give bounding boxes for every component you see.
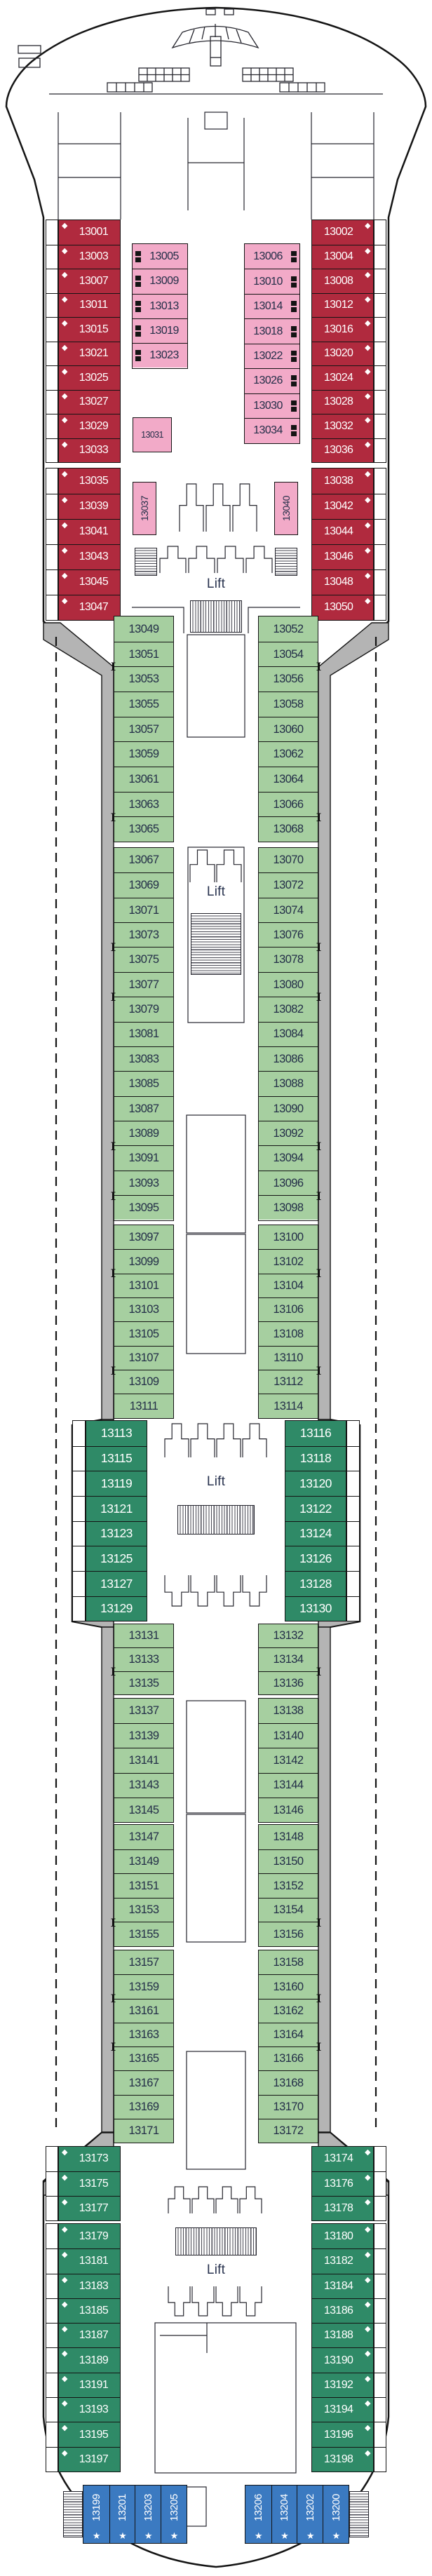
cabin-number: 13168	[259, 2077, 318, 2089]
cabin-number: 13014	[245, 301, 291, 312]
diamond-icon: ◆	[62, 2226, 67, 2234]
cabin-number: 13102	[259, 1256, 318, 1268]
cabin-13116[interactable]: 13116	[285, 1421, 346, 1446]
cabin-number: 13148	[259, 1831, 318, 1843]
cabin-13140[interactable]: 13140	[259, 1723, 318, 1748]
cabin-13199[interactable]: 13199★	[83, 2486, 109, 2543]
cabin-13002[interactable]: 13002◆	[312, 220, 373, 245]
diamond-icon: ◆	[62, 296, 67, 304]
cabin-13005[interactable]: 13005	[133, 244, 187, 269]
cabin-number: 13042	[312, 501, 365, 512]
star-icon: ★	[93, 2531, 100, 2540]
cabin-13124[interactable]: 13124	[285, 1521, 346, 1546]
cabin-number: 13146	[259, 1805, 318, 1816]
cabin-13144[interactable]: 13144	[259, 1773, 318, 1798]
cabin-13156[interactable]: 13156	[259, 1922, 318, 1946]
cabin-number: 13115	[86, 1452, 147, 1465]
fwd-port-interior: 1300513009130131301913023	[132, 243, 188, 369]
cabin-number: 13109	[114, 1376, 173, 1388]
balcony-cell	[374, 2298, 386, 2323]
cabin-number: 13173	[67, 2153, 120, 2164]
cabin-13070[interactable]: 13070	[259, 848, 318, 872]
cabin-13132[interactable]: 13132	[259, 1624, 318, 1647]
cabin-13115[interactable]: 13115	[86, 1446, 147, 1471]
cabin-13100[interactable]: 13100	[259, 1225, 318, 1249]
cabin-13042[interactable]: 13042◆	[312, 494, 373, 519]
cabin-13103[interactable]: 13103	[114, 1297, 173, 1321]
cabin-13168[interactable]: 13168	[259, 2070, 318, 2094]
cabin-13205[interactable]: 13205★	[161, 2486, 187, 2543]
cabin-13155[interactable]: 13155	[114, 1922, 173, 1946]
cabin-number: 13069	[114, 879, 173, 891]
cabin-13198[interactable]: 13198◆	[312, 2447, 373, 2472]
cabin-13046[interactable]: 13046◆	[312, 544, 373, 569]
cabin-number: 13013	[141, 301, 187, 312]
balcony-cell	[46, 2447, 58, 2472]
cabin-13167[interactable]: 13167	[114, 2070, 173, 2094]
cabin-13154[interactable]: 13154	[259, 1898, 318, 1922]
cabin-13089[interactable]: 13089	[114, 1121, 173, 1145]
cabin-13067[interactable]: 13067	[114, 848, 173, 872]
cabin-number: 13160	[259, 1981, 318, 1993]
cabin-13016[interactable]: 13016◆	[312, 317, 373, 342]
cabin-13190[interactable]: 13190◆	[312, 2347, 373, 2372]
cabin-13118[interactable]: 13118	[285, 1446, 346, 1471]
balcony-cell	[374, 2347, 386, 2372]
balcony-cells	[374, 468, 386, 621]
cabin-13201[interactable]: 13201★	[109, 2486, 135, 2543]
cabin-13153[interactable]: 13153	[114, 1898, 173, 1922]
cabin-13069[interactable]: 13069	[114, 872, 173, 897]
cabin-13088[interactable]: 13088	[259, 1071, 318, 1095]
cabin-13055[interactable]: 13055	[114, 692, 173, 717]
balcony-cell	[46, 519, 58, 544]
cabin-number: 13059	[114, 748, 173, 760]
cabin-13196[interactable]: 13196◆	[312, 2422, 373, 2446]
cabin-13134[interactable]: 13134	[259, 1647, 318, 1671]
connecting-rooms-icon: I	[314, 1917, 323, 1929]
diamond-icon: ◆	[365, 497, 370, 504]
cabin-number: 13071	[114, 905, 173, 917]
cabin-13087[interactable]: 13087	[114, 1096, 173, 1121]
cabin-13166[interactable]: 13166	[259, 2046, 318, 2070]
cabin-13095[interactable]: 13095	[114, 1195, 173, 1220]
cabin-13041[interactable]: ◆13041	[59, 519, 120, 544]
cabin-number: 13181	[67, 2255, 120, 2267]
cabin-13015[interactable]: ◆13015	[59, 317, 120, 342]
cabin-13082[interactable]: 13082	[259, 997, 318, 1021]
cabin-13059[interactable]: 13059	[114, 741, 173, 767]
cabin-13027[interactable]: ◆13027	[59, 390, 120, 414]
cabin-13026[interactable]: 13026	[245, 368, 299, 393]
cabin-13007[interactable]: ◆13007	[59, 269, 120, 293]
diamond-icon: ◆	[365, 2400, 370, 2408]
balcony-cell	[73, 1446, 85, 1471]
cabin-13147[interactable]: 13147	[114, 1825, 173, 1849]
cabin-13033[interactable]: ◆13033	[59, 438, 120, 463]
connecting-rooms-icon: I	[109, 1992, 118, 2005]
cabin-13178[interactable]: 13178◆	[312, 2196, 373, 2220]
cabin-13037[interactable]: 13037	[133, 483, 156, 534]
cabin-number: 13194	[312, 2404, 365, 2415]
cabin-number: 13125	[86, 1553, 147, 1565]
cabin-13012[interactable]: 13012◆	[312, 293, 373, 318]
cabin-13028[interactable]: 13028◆	[312, 390, 373, 414]
cabin-13003[interactable]: ◆13003	[59, 245, 120, 269]
balcony-cell	[46, 317, 58, 342]
cabin-13083[interactable]: 13083	[114, 1046, 173, 1071]
cabin-13142[interactable]: 13142	[259, 1748, 318, 1772]
cabin-13049[interactable]: 13049	[114, 616, 173, 642]
cabin-13094[interactable]: 13094	[259, 1145, 318, 1170]
diamond-icon: ◆	[365, 271, 370, 279]
cabin-13071[interactable]: 13071	[114, 898, 173, 922]
cabin-13108[interactable]: 13108	[259, 1321, 318, 1345]
cabin-number: 13184	[312, 2281, 365, 2292]
cabin-13112[interactable]: 13112	[259, 1370, 318, 1394]
cabin-number: 13116	[285, 1427, 346, 1440]
cabin-13125[interactable]: 13125	[86, 1546, 147, 1571]
cabin-13135[interactable]: 13135	[114, 1671, 173, 1694]
cabin-13128[interactable]: 13128	[285, 1571, 346, 1596]
cabin-13073[interactable]: 13073	[114, 922, 173, 947]
cabin-13074[interactable]: 13074	[259, 898, 318, 922]
lift-label-aft: Lift	[207, 2263, 225, 2278]
cabin-13194[interactable]: 13194◆	[312, 2397, 373, 2422]
cabin-13064[interactable]: 13064	[259, 767, 318, 792]
balcony-cell	[374, 2447, 386, 2472]
cabin-13139[interactable]: 13139	[114, 1723, 173, 1748]
cabin-number: 13134	[259, 1654, 318, 1666]
cabin-13145[interactable]: 13145	[114, 1798, 173, 1822]
cabin-13193[interactable]: ◆13193	[59, 2397, 120, 2422]
cabin-number: 13031	[133, 431, 171, 440]
cabin-13172[interactable]: 13172	[259, 2119, 318, 2143]
cabin-13162[interactable]: 13162	[259, 1999, 318, 2023]
cabin-13152[interactable]: 13152	[259, 1873, 318, 1898]
cabin-13030[interactable]: 13030	[245, 393, 299, 418]
cabin-13106[interactable]: 13106	[259, 1297, 318, 1321]
cabin-13165[interactable]: 13165	[114, 2046, 173, 2070]
cabin-13072[interactable]: 13072	[259, 872, 318, 897]
cabin-number: 13188	[312, 2330, 365, 2341]
cabin-13192[interactable]: 13192◆	[312, 2373, 373, 2397]
cabin-number: 13086	[259, 1053, 318, 1065]
cabin-13065[interactable]: 13065	[114, 816, 173, 842]
cabin-13176[interactable]: 13176◆	[312, 2171, 373, 2196]
cabin-13141[interactable]: 13141	[114, 1748, 173, 1772]
cabin-13076[interactable]: 13076	[259, 922, 318, 947]
cabin-13056[interactable]: 13056	[259, 666, 318, 692]
balcony-cell	[347, 1421, 359, 1446]
diamond-icon: ◆	[62, 2450, 67, 2457]
cabin-number: 13140	[259, 1730, 318, 1742]
cabin-13009[interactable]: 13009	[133, 269, 187, 293]
connecting-rooms-icon: I	[314, 1666, 323, 1678]
cabin-13098[interactable]: 13098	[259, 1195, 318, 1220]
cabin-13157[interactable]: 13157	[114, 1950, 173, 1974]
diamond-icon: ◆	[365, 2226, 370, 2234]
cabin-13183[interactable]: ◆13183	[59, 2274, 120, 2298]
cabin-13174[interactable]: 13174◆	[312, 2147, 373, 2171]
cabin-13092[interactable]: 13092	[259, 1121, 318, 1145]
cabin-13113[interactable]: 13113	[86, 1421, 147, 1446]
cabin-13010[interactable]: 13010	[245, 269, 299, 293]
cabin-13057[interactable]: 13057	[114, 717, 173, 742]
cabin-number: 13124	[285, 1528, 346, 1540]
cabin-13050[interactable]: 13050◆	[312, 595, 373, 620]
cabin-13011[interactable]: ◆13011	[59, 293, 120, 318]
cabin-13035[interactable]: ◆13035	[59, 468, 120, 494]
cabin-13019[interactable]: 13019	[133, 318, 187, 343]
cabin-13060[interactable]: 13060	[259, 717, 318, 742]
cabin-13123[interactable]: 13123	[86, 1521, 147, 1546]
cabin-13029[interactable]: ◆13029	[59, 414, 120, 438]
cabin-13189[interactable]: ◆13189	[59, 2347, 120, 2372]
cabin-number: 13171	[114, 2125, 173, 2137]
cabin-number: 13076	[259, 929, 318, 941]
cabin-13129[interactable]: 13129	[86, 1596, 147, 1621]
diamond-icon: ◆	[62, 547, 67, 555]
cabin-13081[interactable]: 13081	[114, 1022, 173, 1046]
balcony-cell	[374, 595, 386, 620]
cabin-number: 13032	[312, 421, 365, 432]
cabin-13160[interactable]: 13160	[259, 1974, 318, 1998]
cabin-13099[interactable]: 13099	[114, 1249, 173, 1273]
cabin-number: 13196	[312, 2429, 365, 2441]
cabin-13020[interactable]: 13020◆	[312, 342, 373, 366]
cabin-number: 13067	[114, 854, 173, 866]
cabin-13051[interactable]: 13051	[114, 642, 173, 667]
balcony-cell	[374, 544, 386, 569]
cabin-13206[interactable]: 13206★	[245, 2486, 271, 2543]
cabin-13200[interactable]: 13200★	[323, 2486, 349, 2543]
cabin-13202[interactable]: 13202★	[297, 2486, 323, 2543]
cabin-13048[interactable]: 13048◆	[312, 569, 373, 595]
cabin-13093[interactable]: 13093	[114, 1171, 173, 1195]
cabin-13126[interactable]: 13126	[285, 1546, 346, 1571]
cabin-13021[interactable]: ◆13021	[59, 342, 120, 366]
cabin-layer: ◆13001◆13003◆13007◆13011◆13015◆13021◆130…	[0, 0, 432, 2576]
balcony-cell	[374, 468, 386, 494]
cabin-13024[interactable]: 13024◆	[312, 365, 373, 390]
cabin-number: 13114	[259, 1401, 318, 1412]
cabin-number: 13005	[141, 251, 187, 262]
cabin-13034[interactable]: 13034	[245, 418, 299, 443]
cabin-13179[interactable]: ◆13179	[59, 2224, 120, 2248]
cabin-13111[interactable]: 13111	[114, 1394, 173, 1417]
connecting-rooms-icon: I	[109, 1267, 118, 1280]
cabin-number: 13122	[285, 1503, 346, 1516]
cabin-13182[interactable]: 13182◆	[312, 2248, 373, 2273]
cabin-13122[interactable]: 13122	[285, 1496, 346, 1521]
cabin-13023[interactable]: 13023	[133, 343, 187, 367]
cabin-13204[interactable]: 13204★	[271, 2486, 297, 2543]
cabin-13109[interactable]: 13109	[114, 1370, 173, 1394]
cabin-number: 13045	[67, 576, 120, 588]
cabin-13151[interactable]: 13151	[114, 1873, 173, 1898]
cabin-13077[interactable]: 13077	[114, 972, 173, 997]
cabin-number: 13073	[114, 929, 173, 941]
balcony-cells	[46, 220, 58, 463]
cabin-number: 13052	[259, 623, 318, 635]
cabin-13203[interactable]: 13203★	[135, 2486, 161, 2543]
cabin-13149[interactable]: 13149	[114, 1849, 173, 1874]
cabin-13080[interactable]: 13080	[259, 972, 318, 997]
cabin-number: 13143	[114, 1779, 173, 1791]
cabin-13091[interactable]: 13091	[114, 1145, 173, 1170]
cabin-13107[interactable]: 13107	[114, 1346, 173, 1370]
cabin-13130[interactable]: 13130	[285, 1596, 346, 1621]
cabin-13186[interactable]: 13186◆	[312, 2298, 373, 2323]
cabin-number: 13019	[141, 325, 187, 337]
cabin-13054[interactable]: 13054	[259, 642, 318, 667]
balcony-cell	[46, 544, 58, 569]
cabin-13068[interactable]: 13068	[259, 816, 318, 842]
cabin-13191[interactable]: ◆13191	[59, 2373, 120, 2397]
cabin-number: 13093	[114, 1178, 173, 1189]
cabin-13053[interactable]: 13053	[114, 666, 173, 692]
cabin-13058[interactable]: 13058	[259, 692, 318, 717]
cabin-13006[interactable]: 13006	[245, 244, 299, 269]
cabin-13148[interactable]: 13148	[259, 1825, 318, 1849]
balcony-cell	[374, 365, 386, 390]
cabin-13110[interactable]: 13110	[259, 1346, 318, 1370]
cabin-13018[interactable]: 13018	[245, 318, 299, 343]
cabin-13180[interactable]: 13180◆	[312, 2224, 373, 2248]
cabin-13170[interactable]: 13170	[259, 2095, 318, 2119]
cabin-number: 13061	[114, 774, 173, 785]
cabin-number: 13050	[312, 602, 365, 613]
cabin-13090[interactable]: 13090	[259, 1096, 318, 1121]
connecting-rooms-icon: I	[314, 2041, 323, 2054]
cabin-13045[interactable]: ◆13045	[59, 569, 120, 595]
mid-stbd-balcony-7: 1315813160131621316413166131681317013172…	[258, 1950, 318, 2143]
cabin-13159[interactable]: 13159	[114, 1974, 173, 1998]
cabin-13047[interactable]: ◆13047	[59, 595, 120, 620]
cabin-13013[interactable]: 13013	[133, 294, 187, 318]
cabin-13066[interactable]: 13066	[259, 792, 318, 817]
cabin-13025[interactable]: ◆13025	[59, 365, 120, 390]
cabin-13078[interactable]: 13078	[259, 947, 318, 971]
connecting-rooms-icon: I	[314, 941, 323, 954]
cabin-13004[interactable]: 13004◆	[312, 245, 373, 269]
cabin-13032[interactable]: 13032◆	[312, 414, 373, 438]
cabin-13181[interactable]: ◆13181	[59, 2248, 120, 2273]
cabin-13043[interactable]: ◆13043	[59, 544, 120, 569]
cabin-13008[interactable]: 13008◆	[312, 269, 373, 293]
cabin-13101[interactable]: 13101	[114, 1274, 173, 1297]
cabin-13136[interactable]: 13136	[259, 1671, 318, 1694]
cabin-13127[interactable]: 13127	[86, 1571, 147, 1596]
cabin-number: 13176	[312, 2178, 365, 2190]
cabin-number: 13039	[67, 501, 120, 512]
cabin-number: 13010	[245, 276, 291, 288]
cabin-13096[interactable]: 13096	[259, 1171, 318, 1195]
cabin-13038[interactable]: 13038◆	[312, 468, 373, 494]
cabin-13052[interactable]: 13052	[259, 616, 318, 642]
diamond-icon: ◆	[365, 296, 370, 304]
balcony-cell	[347, 1446, 359, 1471]
cabin-13163[interactable]: 13163	[114, 2023, 173, 2046]
cabin-13195[interactable]: ◆13195	[59, 2422, 120, 2446]
cabin-13171[interactable]: 13171	[114, 2119, 173, 2143]
cabin-13039[interactable]: ◆13039	[59, 494, 120, 519]
cabin-13022[interactable]: 13022	[245, 344, 299, 368]
cabin-13143[interactable]: 13143	[114, 1773, 173, 1798]
cabin-13173[interactable]: ◆13173	[59, 2147, 120, 2171]
cabin-13075[interactable]: 13075	[114, 947, 173, 971]
cabin-13169[interactable]: 13169	[114, 2095, 173, 2119]
cabin-13175[interactable]: ◆13175	[59, 2171, 120, 2196]
cabin-13031[interactable]: 13031	[133, 418, 171, 452]
cabin-13119[interactable]: 13119	[86, 1471, 147, 1496]
balcony-cells	[46, 2146, 58, 2221]
cabin-13040[interactable]: 13040	[275, 483, 297, 534]
cabin-13079[interactable]: 13079	[114, 997, 173, 1021]
cabin-13158[interactable]: 13158	[259, 1950, 318, 1974]
cabin-13197[interactable]: ◆13197	[59, 2447, 120, 2472]
cabin-13146[interactable]: 13146	[259, 1798, 318, 1822]
cabin-number: 13129	[86, 1603, 147, 1615]
cabin-number: 13100	[259, 1232, 318, 1243]
cabin-13086[interactable]: 13086	[259, 1046, 318, 1071]
cabin-13114[interactable]: 13114	[259, 1394, 318, 1417]
cabin-13014[interactable]: 13014	[245, 294, 299, 318]
cabin-13187[interactable]: ◆13187	[59, 2323, 120, 2347]
cabin-number: 13041	[67, 526, 120, 537]
cabin-13062[interactable]: 13062	[259, 741, 318, 767]
cabin-13102[interactable]: 13102	[259, 1249, 318, 1273]
balcony-cell	[46, 269, 58, 293]
cabin-13085[interactable]: 13085	[114, 1071, 173, 1095]
cabin-13044[interactable]: 13044◆	[312, 519, 373, 544]
cabin-13097[interactable]: 13097	[114, 1225, 173, 1249]
diamond-icon: ◆	[62, 2400, 67, 2408]
cabin-13185[interactable]: ◆13185	[59, 2298, 120, 2323]
cabin-13121[interactable]: 13121	[86, 1496, 147, 1521]
cabin-13120[interactable]: 13120	[285, 1471, 346, 1496]
cabin-13161[interactable]: 13161	[114, 1999, 173, 2023]
cabin-13105[interactable]: 13105	[114, 1321, 173, 1345]
cabin-13061[interactable]: 13061	[114, 767, 173, 792]
cabin-13184[interactable]: 13184◆	[312, 2274, 373, 2298]
cabin-number: 13202	[305, 2486, 316, 2530]
cabin-13001[interactable]: ◆13001	[59, 220, 120, 245]
diamond-icon: ◆	[365, 2425, 370, 2432]
cabin-number: 13023	[141, 350, 187, 361]
cabin-13138[interactable]: 13138	[259, 1699, 318, 1723]
cabin-number: 13131	[114, 1630, 173, 1642]
cabin-13084[interactable]: 13084	[259, 1022, 318, 1046]
cabin-13036[interactable]: 13036◆	[312, 438, 373, 463]
cabin-13137[interactable]: 13137	[114, 1699, 173, 1723]
cabin-13150[interactable]: 13150	[259, 1849, 318, 1874]
diamond-icon: ◆	[365, 248, 370, 255]
cabin-13063[interactable]: 13063	[114, 792, 173, 817]
cabin-13131[interactable]: 13131	[114, 1624, 173, 1647]
cabin-number: 13120	[285, 1478, 346, 1490]
diamond-icon: ◆	[62, 2251, 67, 2259]
cabin-13188[interactable]: 13188◆	[312, 2323, 373, 2347]
cabin-13133[interactable]: 13133	[114, 1647, 173, 1671]
cabin-13177[interactable]: ◆13177	[59, 2196, 120, 2220]
balcony-cell	[46, 2171, 58, 2196]
cabin-13104[interactable]: 13104	[259, 1274, 318, 1297]
balcony-cells	[374, 2223, 386, 2472]
cabin-13164[interactable]: 13164	[259, 2023, 318, 2046]
cabin-number: 13036	[312, 445, 365, 456]
